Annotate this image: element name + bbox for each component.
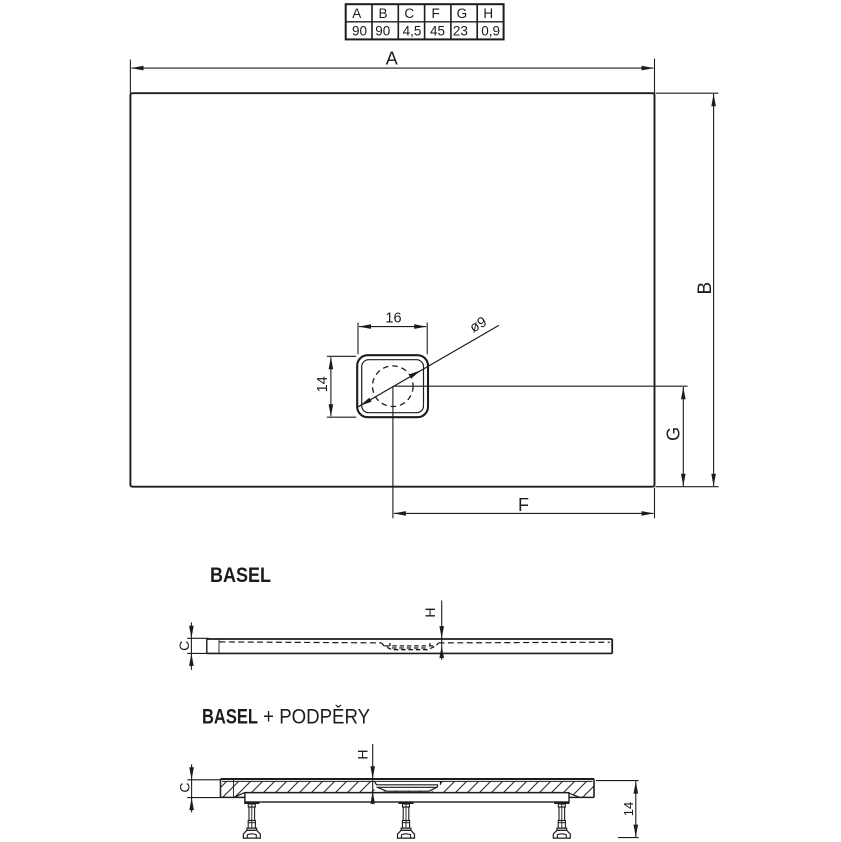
svg-text:A: A bbox=[352, 6, 361, 21]
svg-text:BASEL: BASEL bbox=[210, 564, 271, 587]
svg-text:F: F bbox=[518, 495, 529, 515]
svg-text:14: 14 bbox=[621, 802, 636, 816]
svg-text:A: A bbox=[386, 49, 398, 69]
svg-text:B: B bbox=[695, 282, 716, 295]
svg-text:H: H bbox=[422, 608, 438, 618]
svg-text:H: H bbox=[483, 6, 493, 21]
svg-text:90: 90 bbox=[375, 24, 390, 39]
svg-text:B: B bbox=[378, 6, 387, 21]
svg-text:45: 45 bbox=[430, 24, 445, 39]
svg-text:BASEL + PODPĚRY: BASEL + PODPĚRY bbox=[202, 705, 370, 728]
svg-text:14: 14 bbox=[315, 376, 331, 392]
svg-text:16: 16 bbox=[385, 310, 401, 326]
svg-text:C: C bbox=[176, 782, 192, 792]
svg-text:C: C bbox=[404, 6, 414, 21]
svg-text:0,9: 0,9 bbox=[481, 24, 500, 39]
svg-text:H: H bbox=[355, 750, 371, 760]
svg-text:23: 23 bbox=[453, 24, 468, 39]
svg-text:4,5: 4,5 bbox=[403, 24, 422, 39]
svg-text:G: G bbox=[457, 6, 468, 21]
svg-text:G: G bbox=[664, 427, 684, 441]
svg-text:90: 90 bbox=[352, 24, 367, 39]
svg-text:F: F bbox=[431, 6, 439, 21]
svg-text:C: C bbox=[176, 641, 192, 651]
